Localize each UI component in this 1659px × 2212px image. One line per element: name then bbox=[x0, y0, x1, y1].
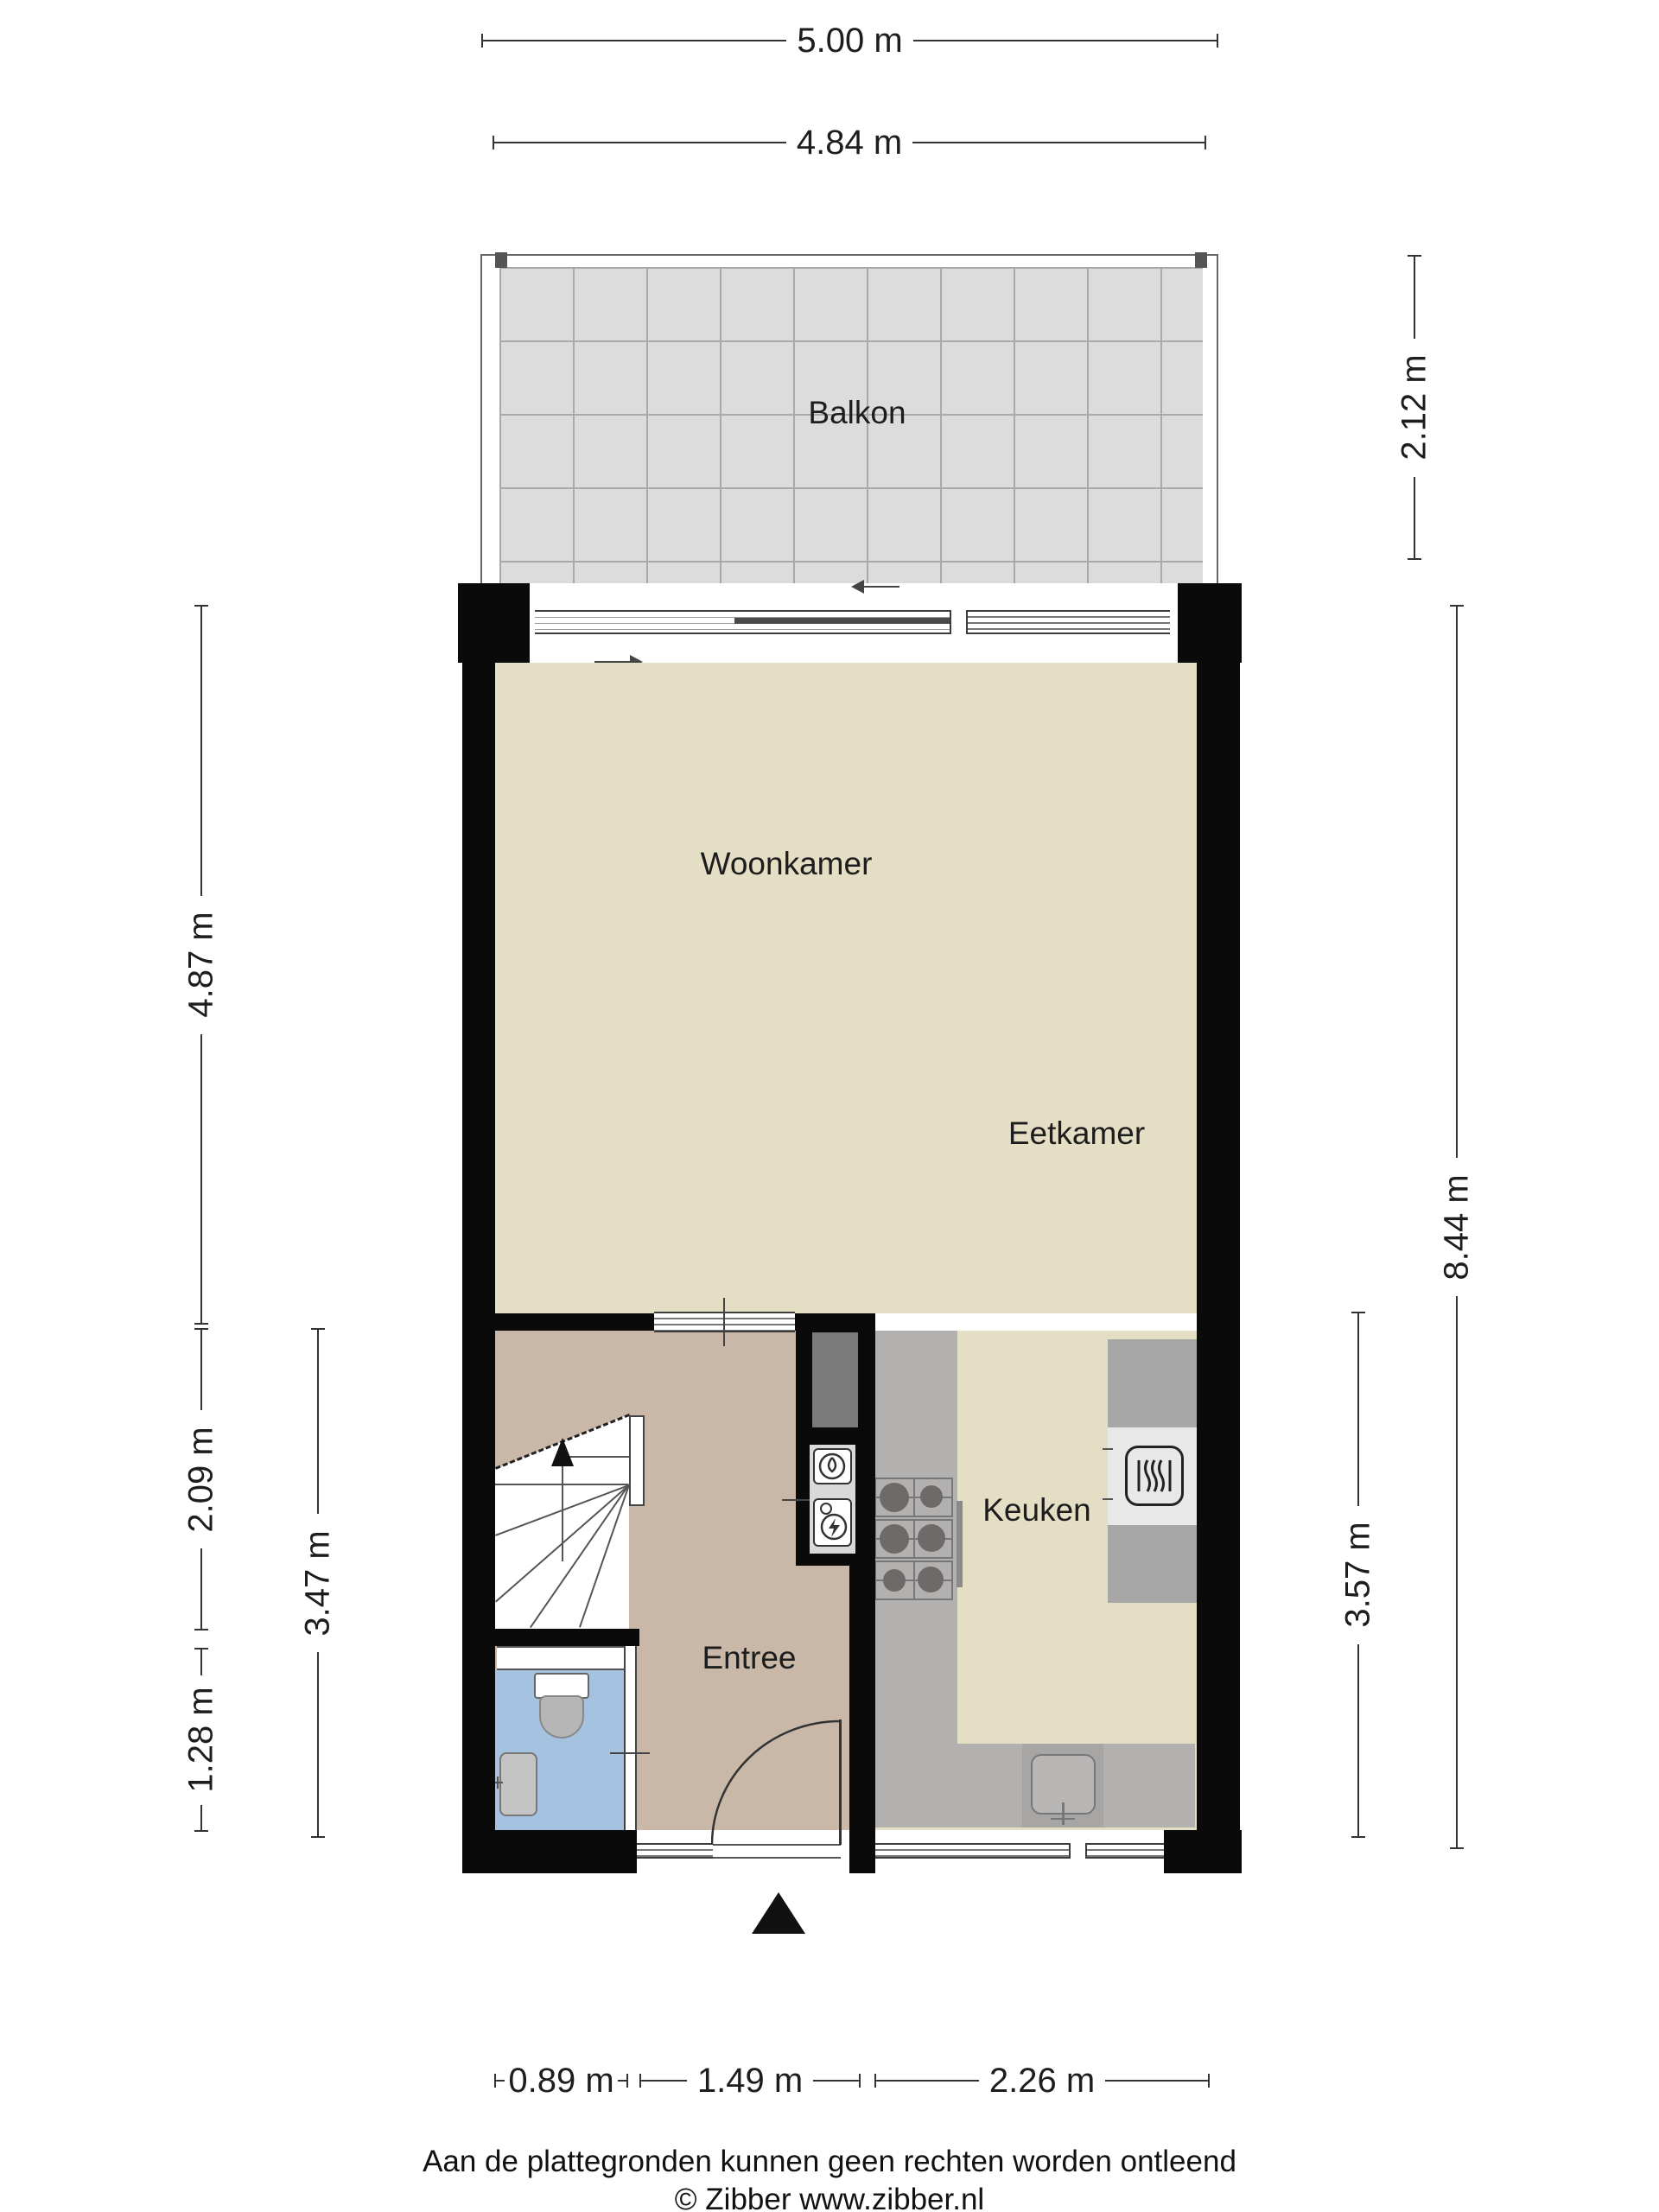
dim-line bbox=[496, 2080, 505, 2082]
entrance-marker-icon bbox=[752, 1892, 805, 1934]
dim-line bbox=[876, 2080, 979, 2082]
boiler-icon bbox=[813, 1448, 852, 1484]
oven-icon bbox=[1125, 1446, 1184, 1506]
dimension-stairs-zone: 2.09 m bbox=[184, 1328, 219, 1630]
window-mullion-bottom bbox=[1069, 1843, 1087, 1859]
dimension-living-height: 4.87 m bbox=[184, 605, 219, 1325]
wall-bottom-left bbox=[462, 1830, 637, 1873]
kitchen-counter-right-top bbox=[1108, 1339, 1197, 1427]
dim-tick bbox=[1450, 1847, 1464, 1849]
meter-lightning-icon bbox=[815, 1500, 850, 1545]
dim-tick bbox=[311, 1836, 325, 1838]
dim-tick bbox=[1408, 558, 1421, 560]
wall-exterior-right bbox=[1197, 583, 1240, 1873]
dim-label-wrap: 3.47 m bbox=[301, 1514, 335, 1652]
duct-shaft bbox=[812, 1332, 858, 1427]
sink-faucet-bar bbox=[1051, 1818, 1075, 1820]
dim-line bbox=[200, 1548, 202, 1629]
dimension-kitchen-height: 3.57 m bbox=[1341, 1312, 1376, 1838]
wall-bottom-right bbox=[1164, 1830, 1242, 1873]
entry-sidelight-window bbox=[637, 1843, 713, 1859]
oven-heat-waves-icon bbox=[1128, 1448, 1181, 1503]
room-label-woonkamer: Woonkamer bbox=[701, 846, 873, 882]
bath-faucet-stem bbox=[497, 1777, 499, 1789]
dim-label: 8.44 m bbox=[1438, 1174, 1477, 1280]
dim-label: 1.49 m bbox=[687, 2062, 813, 2101]
hob-burner bbox=[883, 1569, 906, 1592]
dim-label-wrap: 4.87 m bbox=[184, 896, 219, 1034]
dimension-bottom-entree: 1.49 m bbox=[639, 2063, 861, 2098]
dim-tick bbox=[859, 2074, 861, 2088]
dim-label: 0.89 m bbox=[505, 2062, 617, 2101]
dim-line bbox=[1357, 1644, 1359, 1837]
kitchen-counter-right-bottom bbox=[1108, 1525, 1197, 1603]
dimension-top-inner: 4.84 m bbox=[493, 125, 1206, 160]
dim-line bbox=[1456, 607, 1458, 1158]
dim-tick bbox=[1205, 136, 1206, 149]
dim-line bbox=[1456, 1296, 1458, 1847]
dim-line bbox=[912, 142, 1205, 143]
interior-window-tick bbox=[723, 1298, 725, 1346]
dim-label-wrap: 1.28 m bbox=[184, 1675, 219, 1805]
dimension-top-outer: 5.00 m bbox=[481, 23, 1218, 58]
stairs-up-arrow-icon bbox=[551, 1438, 574, 1466]
oven-handle bbox=[957, 1501, 963, 1587]
dim-line bbox=[200, 1649, 202, 1675]
balcony-fixed-window bbox=[968, 610, 1170, 634]
dimension-balcony-depth: 2.12 m bbox=[1397, 255, 1432, 560]
wall-pilaster-top-left bbox=[458, 583, 530, 663]
hob-burner bbox=[880, 1524, 909, 1554]
bathroom-sink bbox=[499, 1752, 537, 1816]
dim-label: 5.00 m bbox=[786, 22, 912, 60]
dim-line bbox=[618, 2080, 626, 2082]
dim-line bbox=[317, 1330, 319, 1514]
dimension-right-total: 8.44 m bbox=[1440, 605, 1474, 1849]
dim-label: 2.12 m bbox=[1395, 354, 1434, 460]
dimension-bath-zone: 1.28 m bbox=[184, 1648, 219, 1832]
dim-line bbox=[317, 1652, 319, 1836]
dim-line bbox=[200, 607, 202, 896]
wall-living-entree-right bbox=[795, 1313, 875, 1331]
dim-label: 2.26 m bbox=[979, 2062, 1105, 2101]
slide-arrow-left-head bbox=[851, 580, 864, 594]
kitchen-window bbox=[875, 1843, 1164, 1859]
dim-tick bbox=[194, 1323, 208, 1325]
sliding-door-leaf bbox=[734, 618, 950, 624]
dim-line bbox=[913, 40, 1217, 41]
door-threshold bbox=[713, 1857, 841, 1859]
counter-tick-top bbox=[1103, 1448, 1113, 1450]
counter-tick-bottom bbox=[1103, 1498, 1113, 1500]
dimension-bottom-bath: 0.89 m bbox=[494, 2063, 628, 2098]
dim-line bbox=[483, 40, 786, 41]
dim-label: 4.84 m bbox=[786, 124, 912, 162]
footer-disclaimer: Aan de plattegronden kunnen geen rechten… bbox=[0, 2145, 1659, 2179]
dim-label: 4.87 m bbox=[182, 912, 221, 1017]
dim-line bbox=[1105, 2080, 1208, 2082]
hob-burner bbox=[880, 1483, 909, 1512]
closet-tick bbox=[782, 1499, 810, 1501]
dim-tick bbox=[194, 1629, 208, 1630]
hob-burner bbox=[918, 1524, 945, 1552]
meter-icon bbox=[813, 1498, 852, 1547]
slide-arrow-left bbox=[851, 580, 899, 594]
dim-line bbox=[1414, 257, 1415, 339]
room-label-eetkamer: Eetkamer bbox=[1008, 1116, 1145, 1152]
dim-label: 3.47 m bbox=[299, 1530, 338, 1636]
room-label-balkon: Balkon bbox=[808, 395, 906, 431]
floorplan-canvas: Balkon bbox=[0, 0, 1659, 2212]
bathroom-door-jamb bbox=[624, 1646, 637, 1830]
balcony-corner-post-right bbox=[1195, 252, 1207, 268]
dimension-left-inner-total: 3.47 m bbox=[301, 1328, 335, 1838]
wall-exterior-left bbox=[462, 583, 495, 1873]
window-mullion-top bbox=[950, 610, 968, 634]
balcony-corner-post-left bbox=[495, 252, 507, 268]
dim-label-wrap: 2.12 m bbox=[1397, 339, 1432, 477]
wall-bottom-middle bbox=[849, 1830, 875, 1873]
dim-line bbox=[200, 1805, 202, 1831]
dim-line bbox=[641, 2080, 687, 2082]
dim-label-wrap: 2.09 m bbox=[184, 1410, 219, 1548]
slide-arrow-left-line bbox=[861, 586, 899, 588]
sink-faucet bbox=[1062, 1802, 1065, 1825]
dim-line bbox=[494, 142, 786, 143]
dim-label-wrap: 3.57 m bbox=[1341, 1506, 1376, 1644]
footer-copyright: © Zibber www.zibber.nl bbox=[0, 2183, 1659, 2212]
dimension-bottom-kitchen: 2.26 m bbox=[874, 2063, 1210, 2098]
wall-pilaster-top-right bbox=[1178, 583, 1242, 663]
dim-tick bbox=[626, 2074, 628, 2088]
dim-line bbox=[1357, 1313, 1359, 1506]
dim-label: 2.09 m bbox=[182, 1427, 221, 1532]
staircase-landing bbox=[629, 1415, 645, 1506]
dim-tick bbox=[194, 1830, 208, 1832]
boiler-flame-icon bbox=[815, 1450, 850, 1483]
wall-living-entree-left bbox=[495, 1313, 654, 1331]
dim-tick bbox=[1208, 2074, 1210, 2088]
dim-line bbox=[1414, 477, 1415, 559]
entry-door-swing-arc bbox=[711, 1719, 842, 1847]
toilet-bowl bbox=[539, 1695, 584, 1738]
room-label-entree: Entree bbox=[702, 1640, 796, 1676]
dim-line bbox=[200, 1034, 202, 1324]
dim-label-wrap: 8.44 m bbox=[1440, 1158, 1474, 1296]
dim-tick bbox=[1217, 34, 1218, 48]
room-label-keuken: Keuken bbox=[982, 1492, 1091, 1529]
dim-line bbox=[813, 2080, 859, 2082]
dim-line bbox=[200, 1330, 202, 1410]
dim-label: 1.28 m bbox=[182, 1687, 221, 1792]
hob-burner bbox=[918, 1567, 944, 1592]
dim-label: 3.57 m bbox=[1339, 1522, 1378, 1627]
living-dining-floor bbox=[495, 663, 1197, 1313]
dim-tick bbox=[1351, 1836, 1365, 1838]
hob-burner bbox=[920, 1485, 943, 1508]
jamb-tick bbox=[610, 1752, 650, 1754]
bathroom-door bbox=[497, 1646, 624, 1670]
